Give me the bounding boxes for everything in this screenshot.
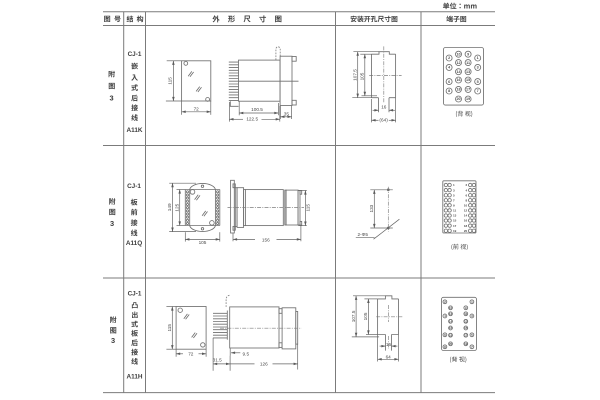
- svg-text:11: 11: [464, 312, 468, 316]
- svg-text:105: 105: [363, 312, 368, 320]
- svg-text:35: 35: [284, 112, 290, 117]
- svg-text:13: 13: [453, 214, 457, 218]
- svg-text:4: 4: [448, 66, 451, 70]
- svg-text:16: 16: [386, 342, 392, 347]
- svg-text:10: 10: [464, 204, 468, 208]
- svg-text:A11Q: A11Q: [126, 240, 142, 247]
- svg-text:16: 16: [464, 219, 468, 223]
- svg-text:15: 15: [466, 78, 470, 82]
- svg-text:19: 19: [464, 342, 468, 346]
- svg-text:6: 6: [448, 80, 450, 84]
- svg-text:18: 18: [456, 88, 460, 92]
- svg-text:126: 126: [260, 362, 268, 367]
- svg-text:20: 20: [464, 229, 468, 233]
- svg-text:19: 19: [466, 97, 470, 101]
- svg-text:107.5: 107.5: [351, 310, 356, 322]
- svg-text:7: 7: [477, 89, 479, 93]
- svg-text:72: 72: [194, 107, 200, 112]
- svg-text:122.5: 122.5: [246, 117, 258, 122]
- svg-text:(64): (64): [379, 118, 388, 123]
- svg-text:149: 149: [167, 203, 172, 211]
- svg-text:CJ-1: CJ-1: [128, 290, 142, 297]
- svg-text:19: 19: [453, 229, 457, 233]
- svg-text:CJ-1: CJ-1: [128, 51, 142, 58]
- svg-text:9: 9: [467, 52, 469, 56]
- svg-text:156: 156: [262, 238, 270, 243]
- svg-text:13: 13: [466, 70, 470, 74]
- svg-text:125: 125: [175, 203, 180, 211]
- svg-text:12: 12: [456, 61, 460, 65]
- svg-text:3: 3: [453, 188, 455, 192]
- svg-text:A11K: A11K: [127, 127, 143, 134]
- svg-text:107.5: 107.5: [352, 69, 357, 81]
- svg-text:9: 9: [453, 204, 455, 208]
- svg-text:64: 64: [386, 355, 392, 360]
- svg-text:CJ-1: CJ-1: [127, 183, 141, 190]
- svg-text:15: 15: [453, 219, 457, 223]
- svg-text:10: 10: [449, 306, 453, 310]
- svg-text:11: 11: [466, 61, 470, 65]
- svg-text:16: 16: [381, 105, 387, 110]
- svg-text:18: 18: [449, 333, 453, 337]
- svg-text:16: 16: [456, 78, 460, 82]
- svg-text:105: 105: [360, 72, 365, 80]
- svg-text:16: 16: [449, 326, 453, 330]
- svg-text:4: 4: [466, 188, 468, 192]
- svg-text:115: 115: [167, 324, 172, 332]
- svg-text:15: 15: [464, 326, 468, 330]
- svg-text:2: 2: [466, 183, 468, 187]
- svg-text:20: 20: [456, 97, 460, 101]
- svg-text:14: 14: [464, 214, 468, 218]
- svg-text:100.5: 100.5: [251, 107, 263, 112]
- svg-text:11: 11: [453, 209, 457, 213]
- svg-text:9.5: 9.5: [243, 352, 250, 357]
- svg-text:3: 3: [111, 336, 115, 345]
- svg-text:31.5: 31.5: [213, 358, 223, 363]
- svg-text:1: 1: [453, 183, 455, 187]
- svg-text:14: 14: [449, 320, 453, 324]
- svg-text:18: 18: [464, 224, 468, 228]
- svg-text:72: 72: [188, 351, 194, 356]
- svg-text:6: 6: [466, 193, 468, 197]
- svg-text:7: 7: [453, 198, 455, 202]
- svg-text:12: 12: [464, 209, 468, 213]
- svg-text:8: 8: [448, 89, 450, 93]
- svg-text:17: 17: [466, 88, 470, 92]
- svg-text:5: 5: [477, 80, 479, 84]
- svg-text:20: 20: [449, 342, 453, 346]
- svg-text:115: 115: [168, 77, 173, 85]
- svg-text:3: 3: [477, 66, 479, 70]
- svg-text:1: 1: [477, 56, 479, 60]
- svg-text:5: 5: [453, 193, 455, 197]
- svg-text:105: 105: [199, 240, 207, 245]
- svg-text:17: 17: [453, 224, 457, 228]
- svg-text:2-Φ5: 2-Φ5: [357, 232, 368, 237]
- svg-text:17: 17: [464, 333, 468, 337]
- svg-text:A11H: A11H: [127, 374, 143, 381]
- svg-text:115: 115: [306, 204, 311, 212]
- svg-text:10: 10: [456, 52, 460, 56]
- svg-text:3: 3: [109, 94, 113, 103]
- svg-text:3: 3: [110, 219, 114, 228]
- svg-text:13: 13: [464, 320, 468, 324]
- svg-text:12: 12: [449, 312, 453, 316]
- svg-text:8: 8: [466, 198, 468, 202]
- svg-text:2: 2: [448, 56, 450, 60]
- svg-text:133: 133: [369, 204, 374, 212]
